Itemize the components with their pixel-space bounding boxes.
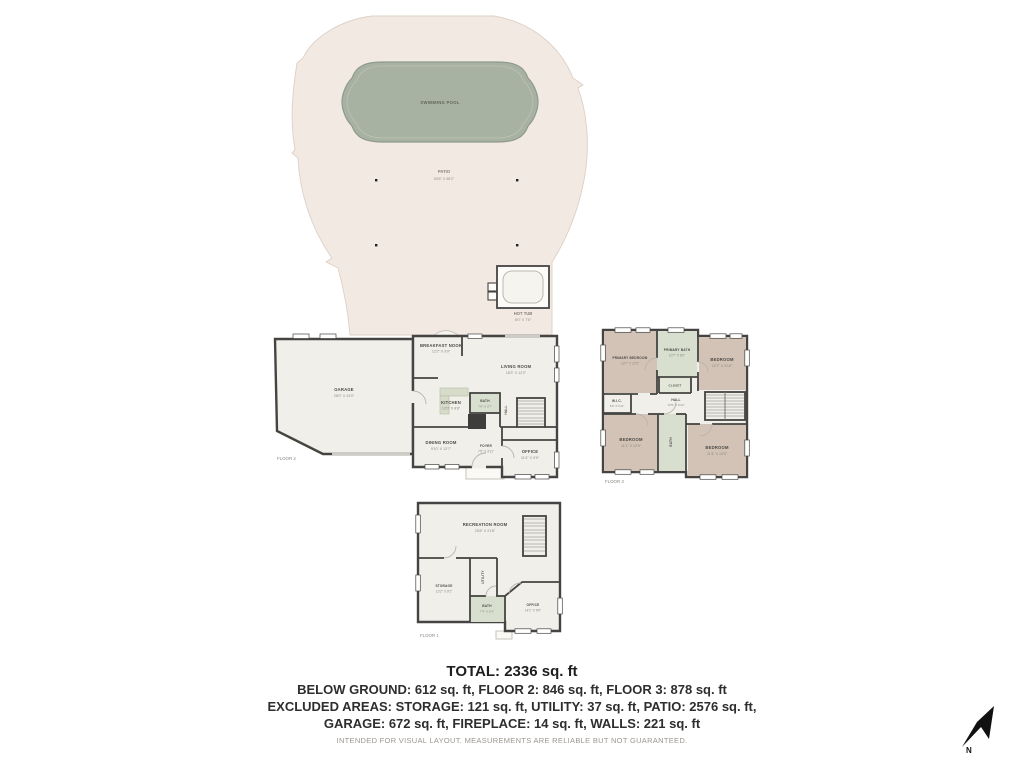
bath-f2-label: BATH (480, 399, 490, 403)
fireplace (468, 414, 486, 429)
breakfast-nook-dims: 12'2" X 9'9" (432, 350, 451, 354)
kitchen-counter (440, 388, 468, 396)
floor1-plan: RECREATION ROOM 25'8" X 21'8" STORAGE 13… (416, 503, 563, 639)
breakfast-nook-label: BREAKFAST NOOK (420, 343, 462, 348)
bedroom-br-label: BEDROOM (705, 445, 729, 450)
patio-post (375, 244, 377, 246)
closet-f3-label: CLOSET (669, 384, 682, 388)
utility-label: UTILITY (481, 570, 485, 584)
floor1-label: FLOOR 1 (420, 633, 439, 638)
living-room-label: LIVING ROOM (501, 364, 532, 369)
summary-excluded-2: GARAGE: 672 sq. ft, FIREPLACE: 14 sq. ft… (0, 716, 1024, 731)
hot-tub-equipment (488, 283, 497, 291)
wic-dims: 5'9" X 3'11" (610, 404, 625, 408)
hall-f2-label: HALL (504, 405, 508, 414)
hot-tub-equipment (488, 292, 497, 300)
living-room-dims: 18'3" X 12'2" (506, 371, 527, 375)
floorplan-page: SWIMMING POOL PATIO 53'6" X 58'2" HOT TU… (0, 0, 1024, 768)
hall-f3-label: HALL (671, 398, 680, 402)
primary-bedroom-dims: 13'7" X 12'3" (621, 362, 639, 366)
stairs-f2 (517, 398, 545, 427)
floor2-plan: GARAGE 28'0" X 24'0" BREAKFAST NOOK 12'2… (275, 331, 559, 480)
summary-disclaimer: INTENDED FOR VISUAL LAYOUT. MEASUREMENTS… (0, 736, 1024, 745)
patio-label: PATIO (438, 169, 451, 174)
garage-label: GARAGE (334, 387, 354, 392)
wic-label: W.I.C. (612, 399, 622, 403)
patio-dims: 53'6" X 58'2" (434, 177, 455, 181)
patio-post (375, 179, 377, 181)
dining-room-dims: 9'10" X 12'7" (431, 447, 452, 451)
kitchen-dims: 12'0" X 8'8" (442, 407, 461, 411)
primary-bath-dims: 10'7" X 8'0" (669, 354, 685, 358)
bath-f3-label: BATH (669, 437, 673, 447)
patio-post (516, 179, 518, 181)
primary-bath-label: PRIMARY BATH (664, 348, 691, 352)
summary-excluded: EXCLUDED AREAS: STORAGE: 121 sq. ft, UTI… (0, 699, 1024, 714)
bedroom-tr-label: BEDROOM (710, 357, 734, 362)
office-f1-dims: 14'1" X 9'9" (525, 609, 541, 613)
hot-tub-dims: 8'0" X 7'6" (515, 318, 532, 322)
foyer-label: FOYER (480, 444, 492, 448)
foyer-dims: 7'9" X 3'11" (478, 450, 494, 454)
office-f2-dims: 11'4" X 9'9" (521, 456, 540, 460)
bedroom-tr-dims: 12'7" X 9'10" (712, 364, 733, 368)
recreation-room-label: RECREATION ROOM (463, 522, 508, 527)
office-f2-label: OFFICE (522, 449, 539, 454)
hot-tub-basin (503, 271, 543, 303)
room-bath-f2 (470, 393, 500, 413)
bedroom-br-dims: 11'4" X 10'5" (707, 452, 728, 456)
bath-f2-dims: 7'6" X 3'7" (478, 405, 492, 409)
summary-total: TOTAL: 2336 sq. ft (0, 663, 1024, 680)
garage-dims: 28'0" X 24'0" (334, 394, 355, 398)
recreation-room-dims: 25'8" X 21'8" (475, 529, 496, 533)
stairs-f3 (705, 392, 745, 420)
dining-room-label: DINING ROOM (425, 440, 456, 445)
north-label: N (966, 746, 972, 755)
primary-bedroom-label: PRIMARY BEDROOM (612, 356, 647, 360)
hot-tub-label: HOT TUB (514, 311, 533, 316)
kitchen-counter (440, 396, 449, 414)
floor2-label: FLOOR 2 (277, 456, 296, 461)
bedroom-bl-label: BEDROOM (619, 437, 643, 442)
floor3-label: FLOOR 3 (605, 479, 624, 484)
bath-f1-dims: 7'4" X 5'4" (480, 610, 494, 614)
office-f1-label: OFFICE (527, 603, 540, 607)
room-bedroom-bottom-right (688, 424, 746, 476)
room-bedroom-bottom-left (604, 414, 658, 471)
storage-dims: 13'2" X 9'2" (436, 590, 452, 594)
storage-label: STORAGE (435, 584, 452, 588)
hall-f3-dims: 13'5" X 3'10" (668, 403, 685, 407)
summary-floors: BELOW GROUND: 612 sq. ft, FLOOR 2: 846 s… (0, 682, 1024, 697)
floor3-plan: PRIMARY BEDROOM 13'7" X 12'3" PRIMARY BA… (601, 328, 750, 484)
bedroom-bl-dims: 11'1" X 12'9" (621, 444, 642, 448)
area-summary: TOTAL: 2336 sq. ft BELOW GROUND: 612 sq.… (0, 663, 1024, 745)
kitchen-label: KITCHEN (441, 400, 461, 405)
stairs-f1 (523, 516, 546, 556)
bath-f1-label: BATH (482, 604, 492, 608)
floorplan-drawing: SWIMMING POOL PATIO 53'6" X 58'2" HOT TU… (0, 0, 1024, 768)
front-porch-step (466, 467, 504, 479)
patio-post (516, 244, 518, 246)
pool-label: SWIMMING POOL (420, 100, 459, 105)
